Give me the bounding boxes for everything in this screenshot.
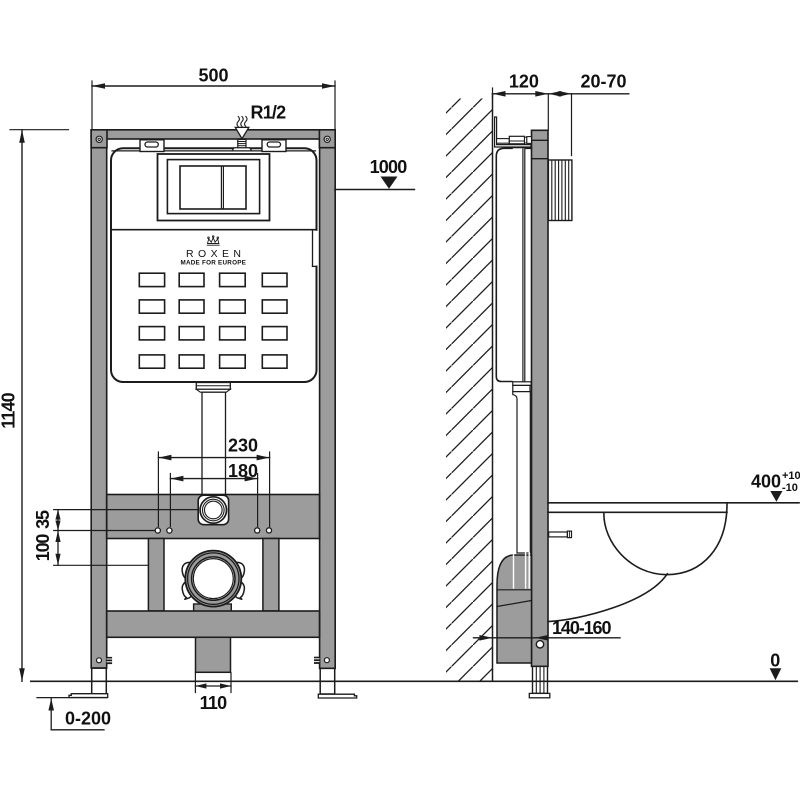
svg-text:-10: -10 <box>782 482 798 494</box>
svg-text:+10: +10 <box>782 470 800 482</box>
svg-text:400: 400 <box>751 472 781 492</box>
svg-text:1000: 1000 <box>370 157 408 177</box>
svg-text:120: 120 <box>509 72 539 92</box>
svg-text:1140: 1140 <box>0 392 19 428</box>
svg-text:R1/2: R1/2 <box>251 103 287 123</box>
svg-text:140-160: 140-160 <box>552 618 611 638</box>
svg-text:500: 500 <box>198 66 228 86</box>
svg-text:110: 110 <box>200 693 227 713</box>
svg-text:35: 35 <box>33 510 53 529</box>
svg-text:0: 0 <box>770 651 780 671</box>
svg-text:180: 180 <box>228 461 258 481</box>
svg-text:230: 230 <box>228 436 258 456</box>
svg-text:MADE FOR EUROPE: MADE FOR EUROPE <box>180 260 246 267</box>
svg-text:20-70: 20-70 <box>580 72 626 92</box>
svg-text:0-200: 0-200 <box>65 708 111 728</box>
svg-text:ROXEN: ROXEN <box>186 248 245 260</box>
svg-text:100: 100 <box>33 534 53 562</box>
